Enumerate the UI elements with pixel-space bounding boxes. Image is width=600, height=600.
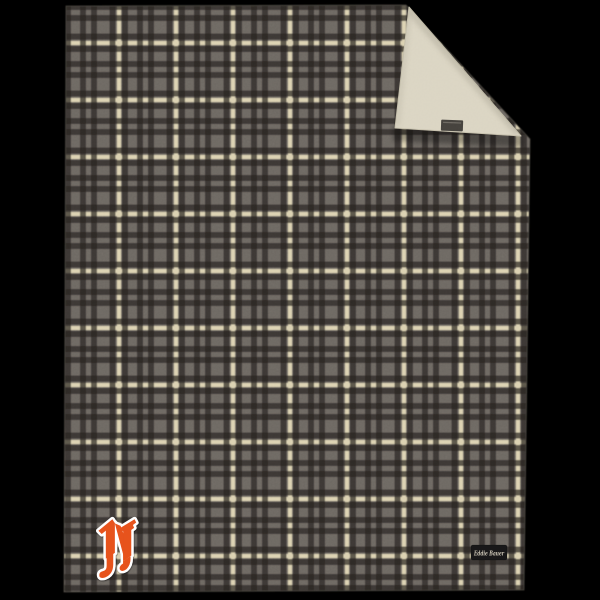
product-photo: N Eddie Bauer <box>0 0 600 600</box>
brand-label-text: Eddie Bauer <box>473 551 504 558</box>
brand-label: Eddie Bauer <box>471 545 507 560</box>
blanket-image: N Eddie Bauer <box>0 0 600 600</box>
grain-overlay <box>60 0 535 600</box>
